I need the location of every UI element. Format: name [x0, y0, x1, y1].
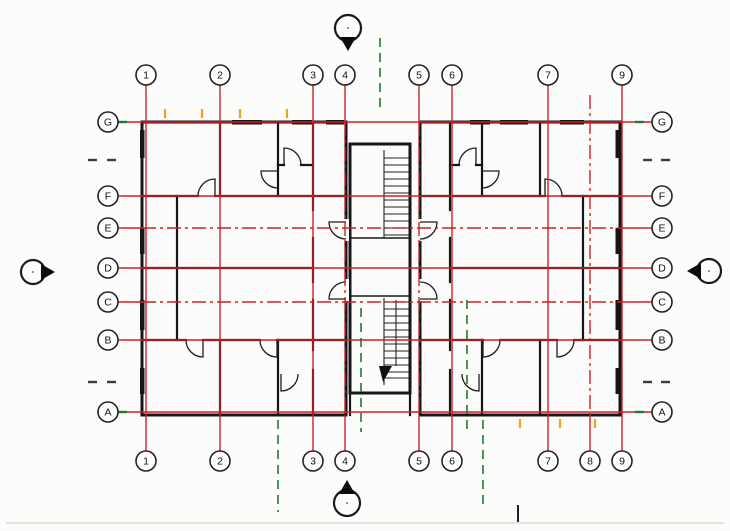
floor-plan-drawing: 11223344556677899GGFFEEDDCCBBAA: [0, 0, 730, 531]
door-swing: [260, 340, 277, 357]
grid-bubble-bottom-8-label: 8: [587, 456, 593, 468]
grid-bubble-top-7: 7: [538, 65, 558, 85]
grid-bubble-right-E-label: E: [658, 223, 665, 235]
grid-bubble-right-A-label: A: [658, 407, 665, 419]
grid-bubble-left-E-label: E: [104, 223, 111, 235]
stair-direction-arrow: [379, 366, 392, 382]
grid-bubble-top-6-label: 6: [449, 70, 455, 82]
grid-bubble-bottom-2-label: 2: [217, 456, 223, 468]
section-marker-left: [21, 260, 55, 284]
grid-bubble-right-G: G: [652, 112, 672, 132]
grid-bubble-top-2: 2: [210, 65, 230, 85]
grid-bubble-top-4: 4: [335, 65, 355, 85]
grid-bubble-left-E: E: [98, 218, 118, 238]
grid-bubble-bottom-6-label: 6: [449, 456, 455, 468]
grid-bubble-left-C-label: C: [104, 297, 112, 309]
section-marker-top-dot: [347, 27, 349, 29]
grid-bubble-bottom-1-label: 1: [143, 456, 149, 468]
floor-plan-canvas: 11223344556677899GGFFEEDDCCBBAA: [0, 0, 730, 531]
section-marker-bottom-arrow: [339, 480, 355, 494]
section-marker-right-dot: [708, 270, 710, 272]
section-marker-bottom-dot: [346, 502, 348, 504]
grid-bubble-left-A: A: [98, 402, 118, 422]
grid-bubble-right-B-label: B: [658, 335, 665, 347]
grid-bubble-left-G: G: [98, 112, 118, 132]
grid-bubble-right-G-label: G: [658, 117, 666, 129]
stair-bottom: [379, 298, 409, 385]
grid-bubble-right-E: E: [652, 218, 672, 238]
stair-top: [384, 150, 409, 238]
grid-bubble-bottom-5-label: 5: [416, 456, 422, 468]
misc-marks-layer: [6, 505, 724, 523]
grid-bubble-left-D-label: D: [104, 263, 112, 275]
grid-bubble-bottom-1: 1: [136, 451, 156, 471]
grid-bubble-right-F: F: [652, 186, 672, 206]
section-marker-left-dot: [32, 271, 34, 273]
grid-bubble-right-D: D: [652, 258, 672, 278]
grid-bubble-bottom-4-label: 4: [342, 456, 348, 468]
grid-bubble-top-9: 9: [612, 65, 632, 85]
door-swings-layer: [186, 148, 574, 391]
grid-bubble-bottom-6: 6: [442, 451, 462, 471]
grid-bubble-right-C-label: C: [658, 297, 666, 309]
grid-bubble-bottom-3: 3: [303, 451, 323, 471]
grid-bubble-top-3: 3: [303, 65, 323, 85]
grid-bubble-bottom-4: 4: [335, 451, 355, 471]
grid-bubble-left-A-label: A: [104, 407, 111, 419]
grid-bubble-right-F-label: F: [659, 191, 665, 203]
grid-bubble-right-C: C: [652, 292, 672, 312]
grid-bubble-top-4-label: 4: [342, 70, 348, 82]
section-marker-top: [335, 15, 361, 51]
section-marker-right: [687, 259, 721, 283]
door-swing: [284, 148, 301, 165]
section-markers-layer: [21, 15, 721, 516]
grid-bubble-top-3-label: 3: [310, 70, 316, 82]
door-swing: [483, 340, 500, 357]
grid-bubble-top-5-label: 5: [416, 70, 422, 82]
grid-bubble-bottom-7-label: 7: [545, 456, 551, 468]
grid-bubble-bottom-8: 8: [580, 451, 600, 471]
section-marker-left-arrow: [41, 264, 55, 280]
grid-bubble-top-5: 5: [409, 65, 429, 85]
grid-bubble-right-A: A: [652, 402, 672, 422]
grid-bubble-bottom-3-label: 3: [310, 456, 316, 468]
grid-bubble-bottom-7: 7: [538, 451, 558, 471]
grid-bubble-left-F-label: F: [105, 191, 111, 203]
door-swing: [462, 374, 479, 391]
grid-bubble-left-D: D: [98, 258, 118, 278]
grid-bubble-left-B: B: [98, 330, 118, 350]
door-swing: [557, 340, 574, 357]
door-swing: [261, 171, 278, 188]
grid-bubble-left-B-label: B: [104, 335, 111, 347]
grid-bubble-left-F: F: [98, 186, 118, 206]
grid-bubble-left-C: C: [98, 292, 118, 312]
door-swing: [482, 171, 499, 188]
door-swing: [186, 340, 203, 357]
door-swing: [459, 148, 476, 165]
grid-bubble-top-9-label: 9: [619, 70, 625, 82]
door-swing: [198, 179, 215, 196]
grid-bubble-top-1-label: 1: [143, 70, 149, 82]
grid-bubble-top-2-label: 2: [217, 70, 223, 82]
grid-bubble-bottom-2: 2: [210, 451, 230, 471]
section-marker-right-arrow: [687, 263, 701, 279]
core-landing-wall: [350, 238, 410, 296]
grid-bubble-bottom-9: 9: [612, 451, 632, 471]
grid-bubble-top-6: 6: [442, 65, 462, 85]
section-marker-top-arrow: [340, 37, 356, 51]
grid-bubble-bottom-9-label: 9: [619, 456, 625, 468]
grid-lines-layer: [118, 85, 652, 451]
grid-bubble-right-D-label: D: [658, 263, 666, 275]
grid-bubble-right-B: B: [652, 330, 672, 350]
grid-bubble-bottom-5: 5: [409, 451, 429, 471]
section-marker-bottom: [334, 480, 360, 516]
grid-bubble-left-G-label: G: [104, 117, 112, 129]
grid-bubble-top-1: 1: [136, 65, 156, 85]
grid-bubble-top-7-label: 7: [545, 70, 551, 82]
door-swing: [281, 374, 298, 391]
